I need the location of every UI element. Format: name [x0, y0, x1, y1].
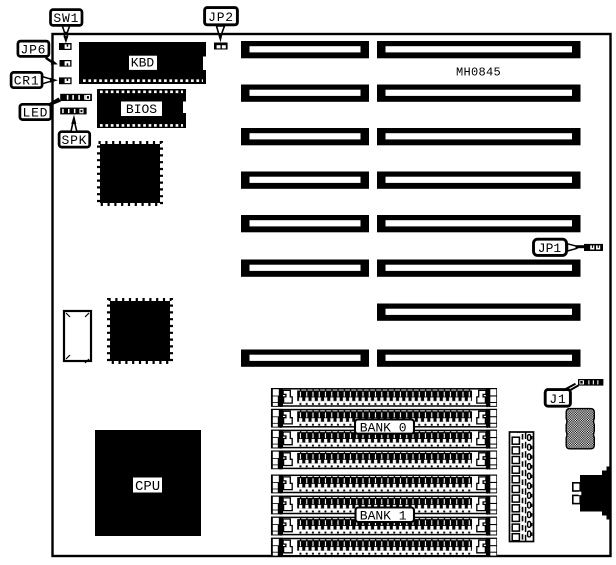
svg-text:MH0845: MH0845 [456, 66, 501, 80]
svg-text:SW1: SW1 [53, 11, 79, 26]
svg-text:BANK 1: BANK 1 [360, 508, 407, 523]
svg-text:JP6: JP6 [20, 42, 46, 57]
svg-text:SPK: SPK [61, 133, 87, 148]
svg-text:JP1: JP1 [538, 241, 562, 256]
svg-text:LED: LED [22, 106, 48, 121]
svg-text:BANK 0: BANK 0 [360, 420, 407, 435]
svg-text:CR1: CR1 [14, 74, 40, 89]
svg-text:JP2: JP2 [208, 10, 234, 25]
svg-text:CPU: CPU [135, 479, 160, 495]
svg-text:KBD: KBD [131, 56, 155, 71]
svg-text:BIOS: BIOS [126, 102, 157, 117]
svg-text:J1: J1 [549, 392, 566, 407]
